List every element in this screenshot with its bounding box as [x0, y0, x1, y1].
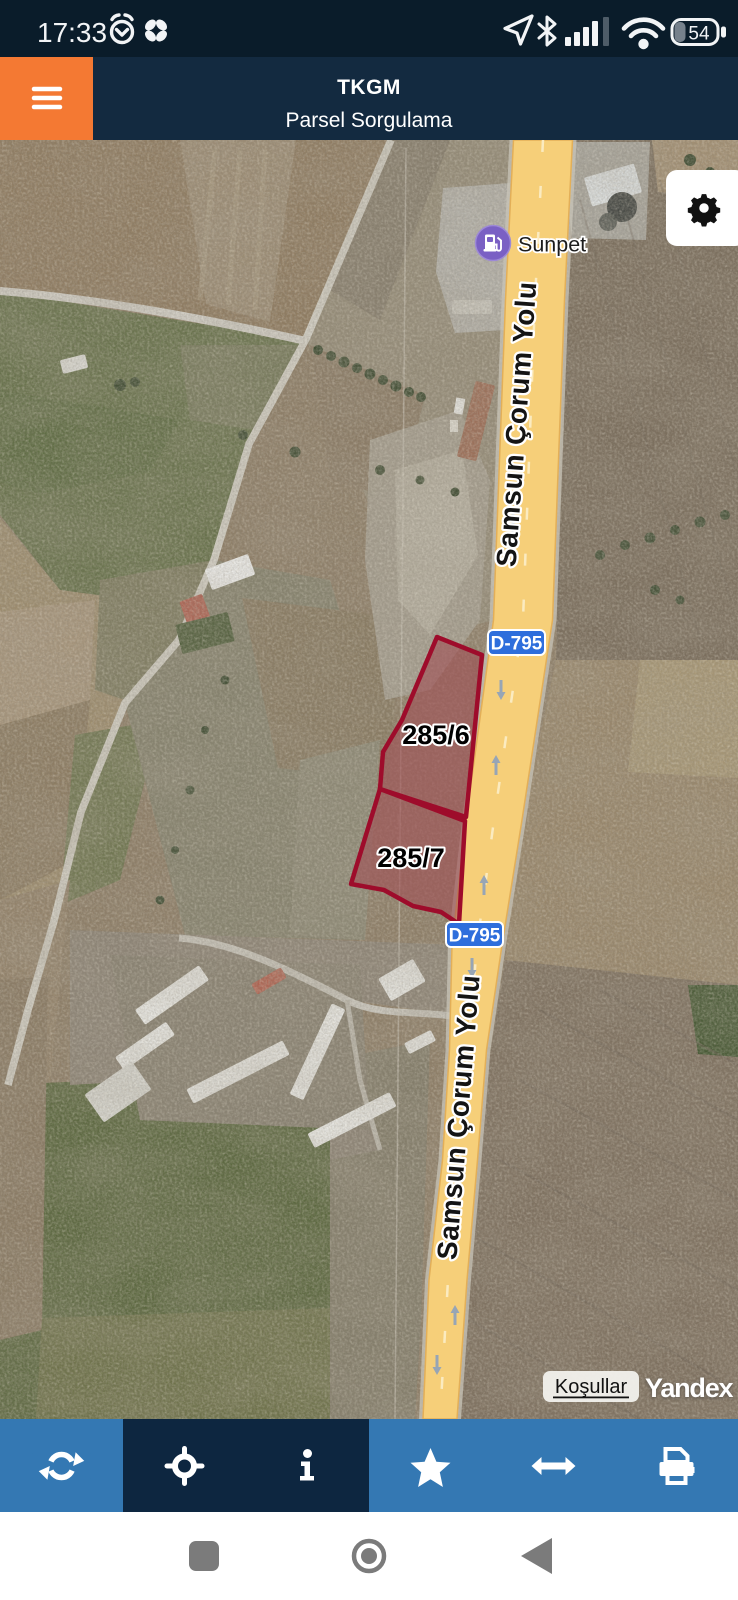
svg-text:D-795: D-795: [449, 926, 501, 947]
svg-text:Yandex: Yandex: [645, 1373, 734, 1403]
svg-text:17:33: 17:33: [37, 17, 107, 48]
svg-text:D-795: D-795: [491, 634, 543, 655]
svg-text:54: 54: [688, 24, 710, 45]
svg-text:Sunpet: Sunpet: [518, 233, 586, 257]
svg-text:285/6: 285/6: [402, 720, 470, 750]
svg-text:285/7: 285/7: [377, 843, 445, 873]
svg-text:Koşullar: Koşullar: [555, 1376, 628, 1398]
